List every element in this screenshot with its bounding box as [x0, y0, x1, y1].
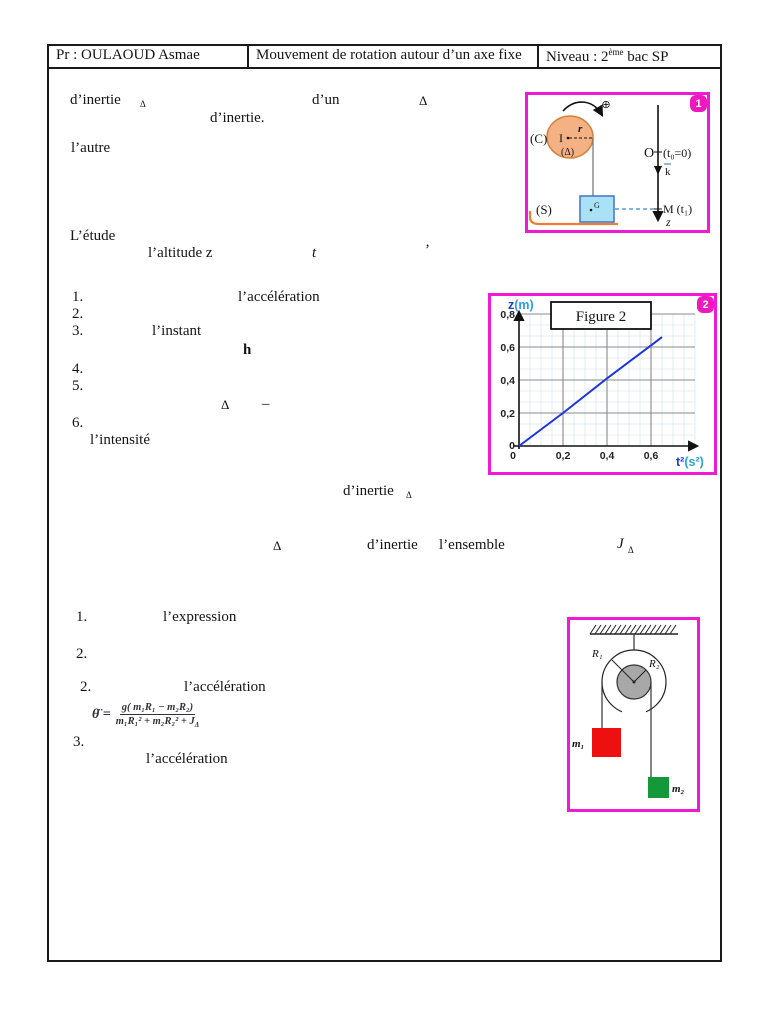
y-tick-06: 0,6: [500, 342, 515, 354]
figure1-diagram: ⊕ (C) I r (Δ) G (S) O (t₀=0) k M (t₁) z: [528, 95, 707, 230]
center-dot: [567, 137, 570, 140]
text-fragment: l’altitude z: [148, 246, 213, 261]
header-table: Pr : OULAOUD Asmae Mouvement de rotation…: [49, 46, 720, 69]
formula-denominator: m₁R₁² + m₂R₂² + JΔ: [116, 715, 199, 730]
formula-lhs: θ̈ =: [92, 707, 111, 723]
text-fragment: l’instant: [152, 324, 201, 339]
text-fragment: l’ensemble: [439, 538, 505, 553]
text-fragment: d’inertie: [70, 93, 121, 108]
text-fragment: d’inertie: [343, 484, 394, 499]
x-label-unit: (s²): [684, 455, 703, 469]
figure3-box: R₁ R₂ m₁ m₂: [567, 617, 700, 812]
header-level-pre: Niveau : 2: [546, 49, 608, 65]
list-number: 2.: [76, 647, 87, 662]
label-S: (S): [536, 202, 552, 217]
y-tick-02: 0,2: [500, 408, 515, 420]
figure3-diagram: R₁ R₂ m₁ m₂: [570, 620, 697, 809]
list-number: 1.: [76, 610, 87, 625]
figure2-badge: 2: [697, 296, 714, 313]
text-fragment: Δ: [273, 539, 281, 552]
text-fragment: L’étude: [70, 229, 115, 244]
label-R1: R₁: [591, 648, 603, 660]
formula-den-sub: Δ: [195, 721, 199, 729]
label-R2: R₂: [648, 658, 660, 670]
figure2-chart: Figure 2 0 0,2 0,4 0,6 0 0,2 0,4 0,6 0,8…: [491, 296, 714, 472]
G-dot: [590, 209, 593, 212]
rotation-arrow: [563, 102, 602, 115]
label-M: M (t₁): [663, 202, 692, 216]
figure2-box: 2 Figure 2 0 0,2 0,4 0,6 0 0,2 0,4 0,6 0…: [488, 293, 717, 475]
label-delta-axis: (Δ): [561, 147, 574, 158]
text-fragment: –: [262, 397, 270, 412]
label-r: r: [578, 123, 583, 135]
text-fragment: t: [312, 246, 316, 261]
mass-m1: [592, 728, 621, 757]
y-tick-04: 0,4: [500, 375, 515, 387]
header-title: Mouvement de rotation autour d’un axe fi…: [249, 46, 539, 67]
text-fragment: J: [617, 537, 624, 552]
text-fragment: l’accélération: [238, 290, 320, 305]
ceiling-hatch: [590, 625, 676, 634]
label-G: G: [594, 201, 600, 210]
text-fragment: d’inertie.: [210, 111, 265, 126]
pulley-gap: [622, 709, 646, 717]
text-fragment: Δ: [628, 546, 634, 555]
figure1-box: 1 ⊕ (C) I r (Δ) G (S) O (t₀=0) k M (t₁) …: [525, 92, 710, 233]
text-fragment: l’expression: [163, 610, 236, 625]
header-level-sup: ème: [608, 47, 623, 57]
label-m2: m₂: [672, 783, 685, 795]
x-tick-04: 0,4: [600, 450, 615, 462]
text-fragment: h: [243, 343, 251, 358]
y-label-unit: (m): [514, 298, 533, 312]
text-fragment: Δ: [406, 491, 412, 500]
text-fragment: Δ: [221, 398, 229, 411]
label-I: I: [559, 131, 563, 145]
text-fragment: Δ: [419, 94, 427, 107]
list-number: 2.: [72, 307, 83, 322]
text-fragment: l’intensité: [90, 433, 150, 448]
y-axis-label: z(m): [508, 298, 534, 312]
x-tick-06: 0,6: [644, 450, 659, 462]
text-fragment: d’inertie: [367, 538, 418, 553]
text-fragment: l’autre: [71, 141, 110, 156]
label-m1: m₁: [572, 738, 584, 750]
text-fragment: ’: [425, 243, 430, 258]
list-number: 2.: [80, 680, 91, 695]
list-number: 3.: [73, 735, 84, 750]
formula-den-main: m₁R₁² + m₂R₂² + J: [116, 716, 195, 727]
x-tick-02: 0,2: [556, 450, 571, 462]
label-t0: (t₀=0): [663, 146, 691, 160]
figure1-badge: 1: [690, 95, 707, 112]
header-level: Niveau : 2ème bac SP: [539, 46, 720, 67]
header-level-post: bac SP: [623, 49, 668, 65]
figure2-title: Figure 2: [576, 309, 626, 325]
label-O: O: [644, 146, 654, 161]
list-number: 5.: [72, 379, 83, 394]
list-number: 1.: [72, 290, 83, 305]
rotation-sign-icon: ⊕: [601, 99, 610, 111]
list-number: 4.: [72, 362, 83, 377]
label-k: k: [665, 166, 671, 178]
formula-fraction: g( m₁R₁ − m₂R₂) m₁R₁² + m₂R₂² + JΔ: [116, 701, 199, 730]
header-teacher: Pr : OULAOUD Asmae: [49, 46, 249, 67]
list-number: 6.: [72, 416, 83, 431]
k-vector-arrowhead: [654, 166, 662, 175]
document-page: { "header": { "teacher": "Pr : OULAOUD A…: [0, 0, 768, 1024]
text-fragment: l’accélération: [146, 752, 228, 767]
fig2-line: [519, 337, 662, 446]
mass-m2: [648, 777, 669, 798]
label-C: (C): [530, 131, 547, 146]
x-label-sym: t²: [676, 455, 684, 469]
text-fragment: l’accélération: [184, 680, 266, 695]
label-z: z: [665, 215, 671, 229]
angular-acceleration-formula: θ̈ = g( m₁R₁ − m₂R₂) m₁R₁² + m₂R₂² + JΔ: [92, 701, 199, 730]
list-number: 3.: [72, 324, 83, 339]
text-fragment: Δ: [140, 100, 146, 109]
x-axis-label: t²(s²): [676, 455, 704, 469]
formula-numerator: g( m₁R₁ − m₂R₂): [120, 701, 195, 715]
text-fragment: d’un: [312, 93, 340, 108]
y-tick-0: 0: [509, 440, 515, 452]
